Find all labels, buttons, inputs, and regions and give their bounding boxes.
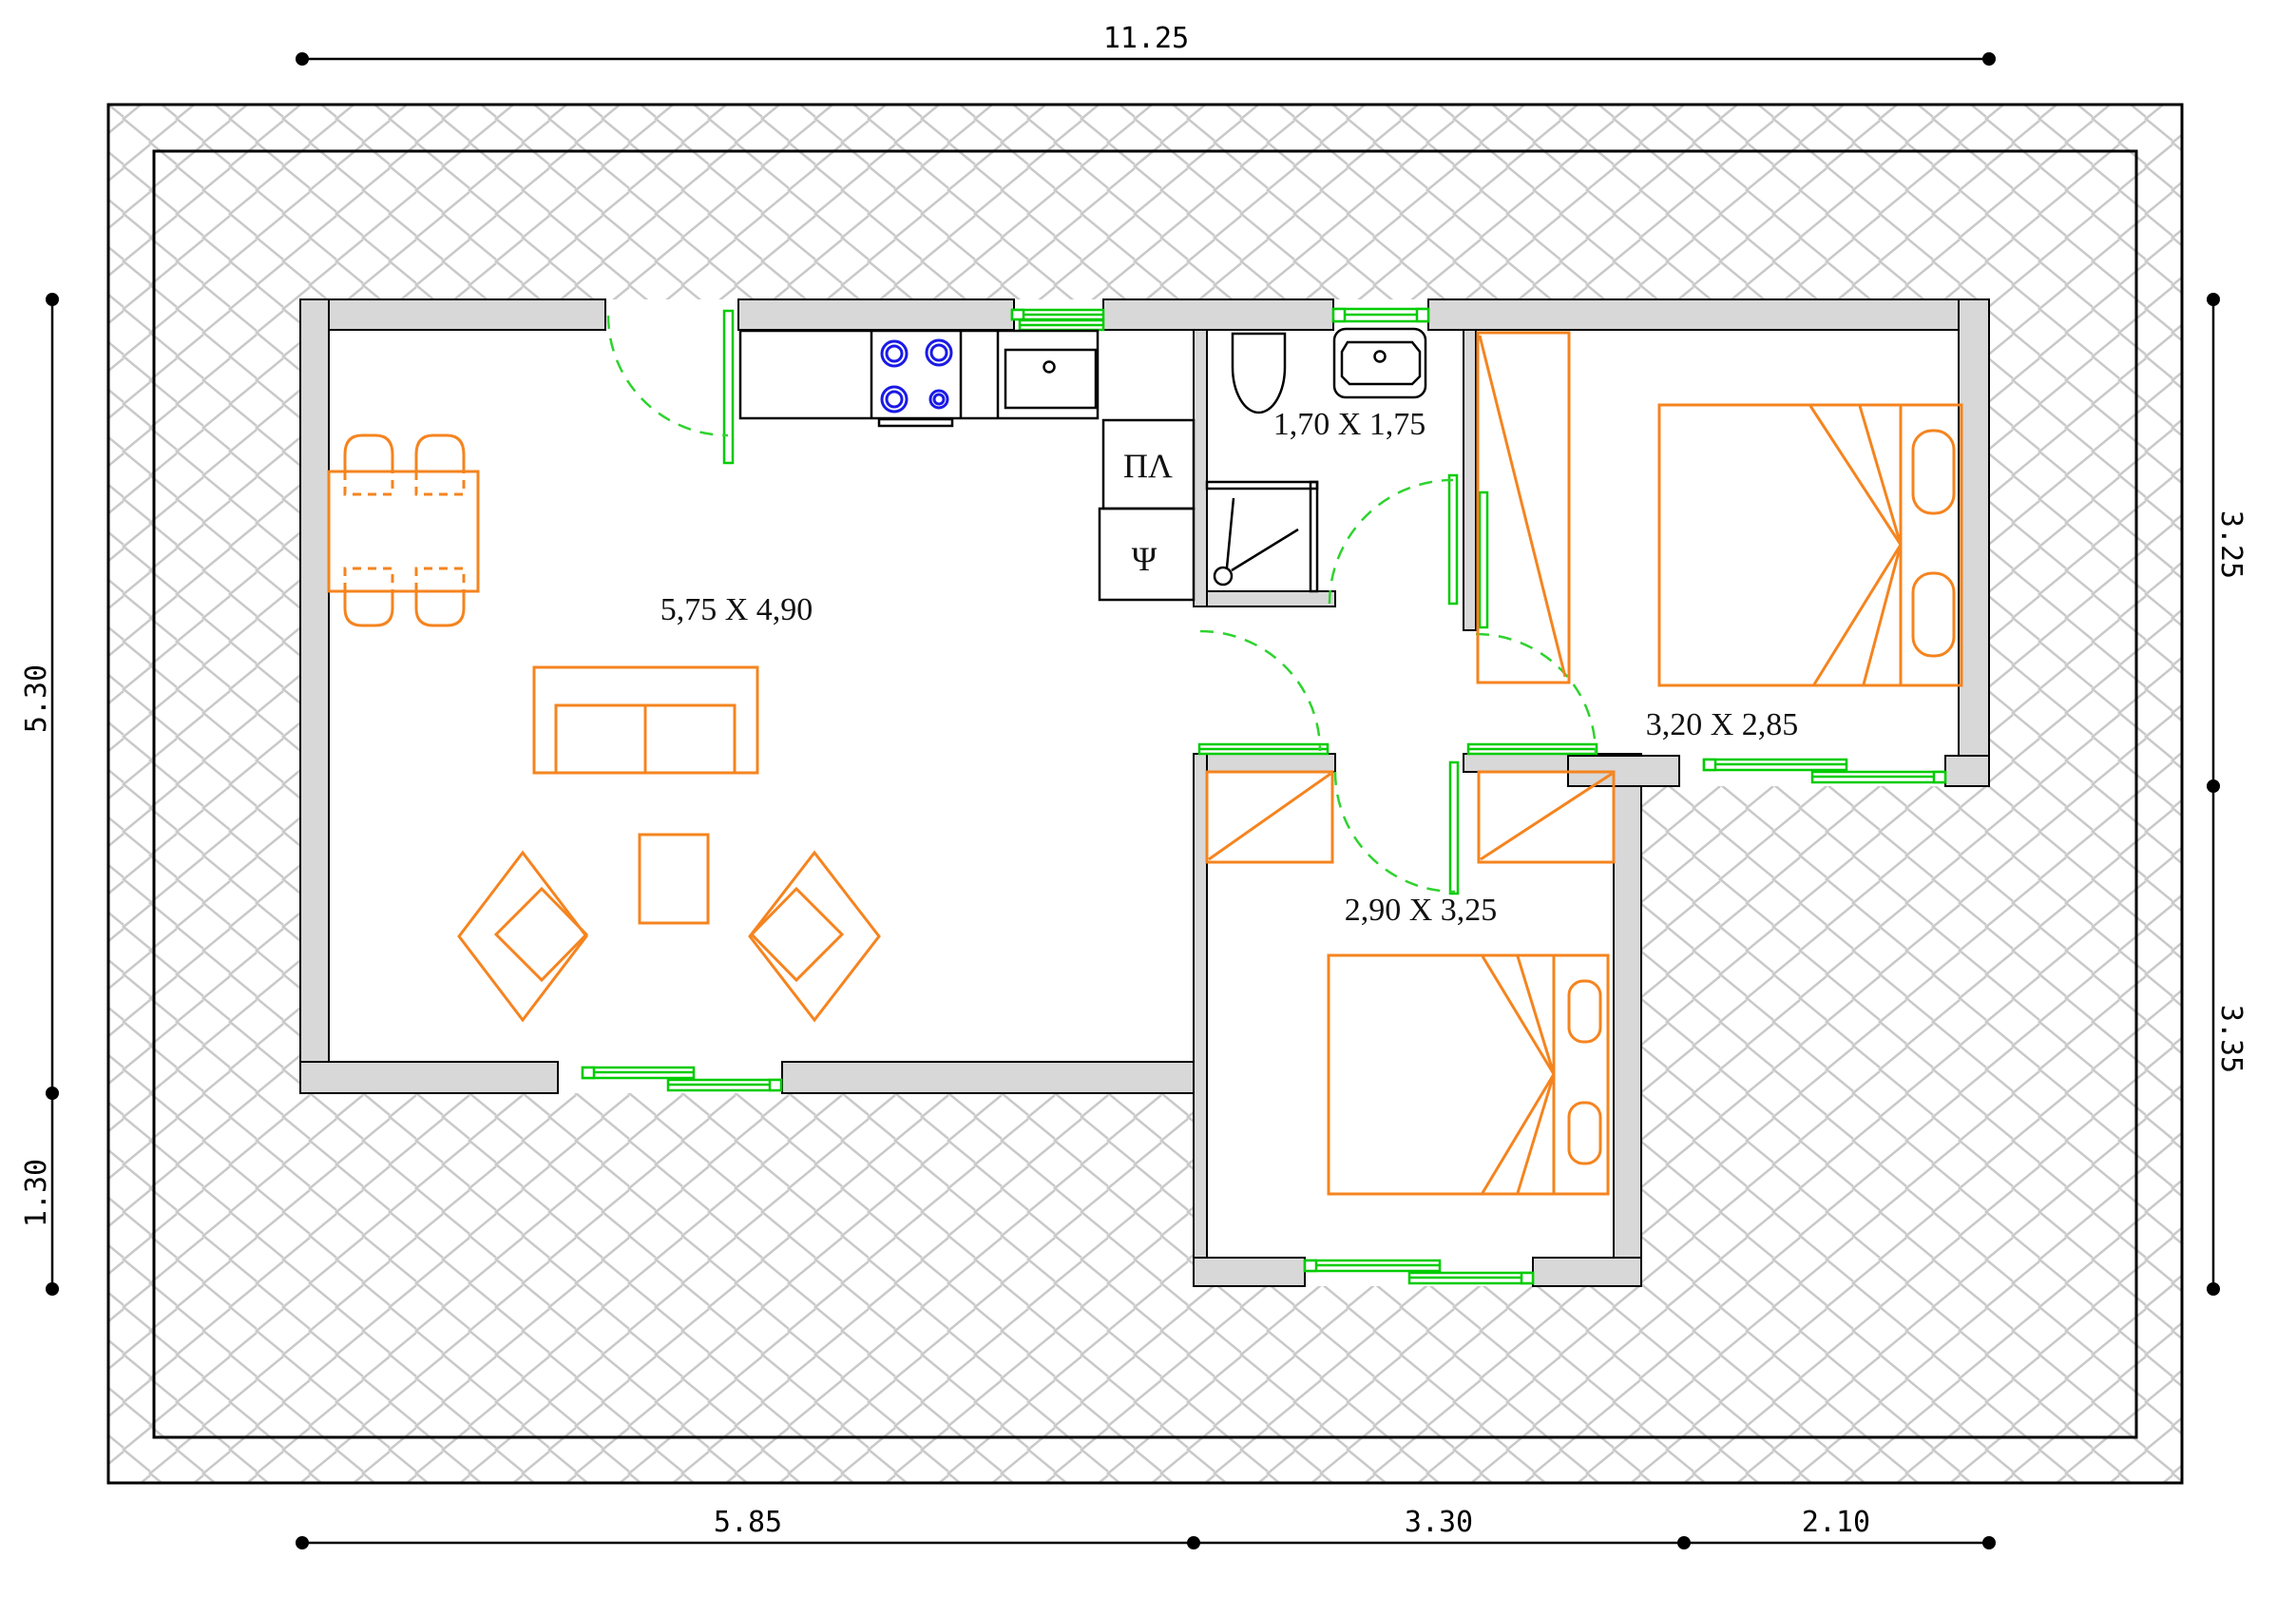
- wall-bedroom-bottom-bottom-1: [1194, 1258, 1305, 1286]
- wall-bedroom-bottom-bottom-2: [1533, 1258, 1641, 1286]
- wall-top-3: [1103, 299, 1333, 330]
- wall-living-bottom-1: [300, 1062, 558, 1093]
- dim-left-1-label: 5.30: [20, 664, 53, 733]
- dim-right-2-label: 3.35: [2214, 1005, 2248, 1073]
- toilet-icon: [1233, 334, 1285, 413]
- wall-bedroom-bottom-top-1: [1194, 754, 1335, 772]
- floor-plan-page: ΠΛ Ψ 1,70 X 1,75: [0, 0, 2296, 1616]
- dim-top-label: 11.25: [1103, 22, 1189, 55]
- dimension-bottom: 5.85 3.30 2.10: [296, 1506, 1996, 1549]
- floor-plan-drawing: ΠΛ Ψ 1,70 X 1,75: [0, 0, 2296, 1616]
- washing-machine-label: ΠΛ: [1123, 447, 1173, 485]
- bedroom-bottom-size-label: 2,90 X 3,25: [1345, 893, 1498, 928]
- dim-right-1-label: 3.25: [2214, 510, 2248, 579]
- dimension-top: 11.25: [296, 22, 1996, 66]
- wall-top-4: [1428, 299, 1989, 330]
- wall-top-2: [738, 299, 1014, 330]
- wall-top-1: [300, 299, 605, 330]
- dimension-left: 5.30 1.30: [20, 293, 59, 1296]
- living-room-size-label: 5,75 X 4,90: [660, 592, 813, 627]
- bathroom-size-label: 1,70 X 1,75: [1273, 407, 1426, 442]
- wall-living-bottom-2: [782, 1062, 1194, 1093]
- wall-bedroom-bottom-right: [1614, 756, 1641, 1286]
- dimension-right: 3.25 3.35: [2207, 293, 2248, 1296]
- refrigerator-label: Ψ: [1132, 540, 1158, 578]
- kitchen-window-icon: [1012, 310, 1103, 330]
- wall-left: [300, 299, 329, 1093]
- wall-bathroom-right: [1464, 330, 1476, 630]
- dim-bottom-1-label: 5.85: [714, 1506, 782, 1539]
- wall-bedroom-right-bottom-2: [1945, 756, 1989, 786]
- wall-right-upper: [1959, 299, 1989, 786]
- bathroom-window-icon: [1333, 309, 1428, 321]
- dim-bottom-3-label: 2.10: [1802, 1506, 1870, 1539]
- dim-bottom-2-label: 3.30: [1405, 1506, 1473, 1539]
- wall-shower-bottom: [1207, 591, 1335, 606]
- dim-left-2-label: 1.30: [20, 1159, 53, 1227]
- bedroom-right-size-label: 3,20 X 2,85: [1646, 707, 1799, 742]
- wall-bedroom-bottom-left: [1194, 754, 1207, 1286]
- wall-bathroom-left: [1194, 330, 1207, 606]
